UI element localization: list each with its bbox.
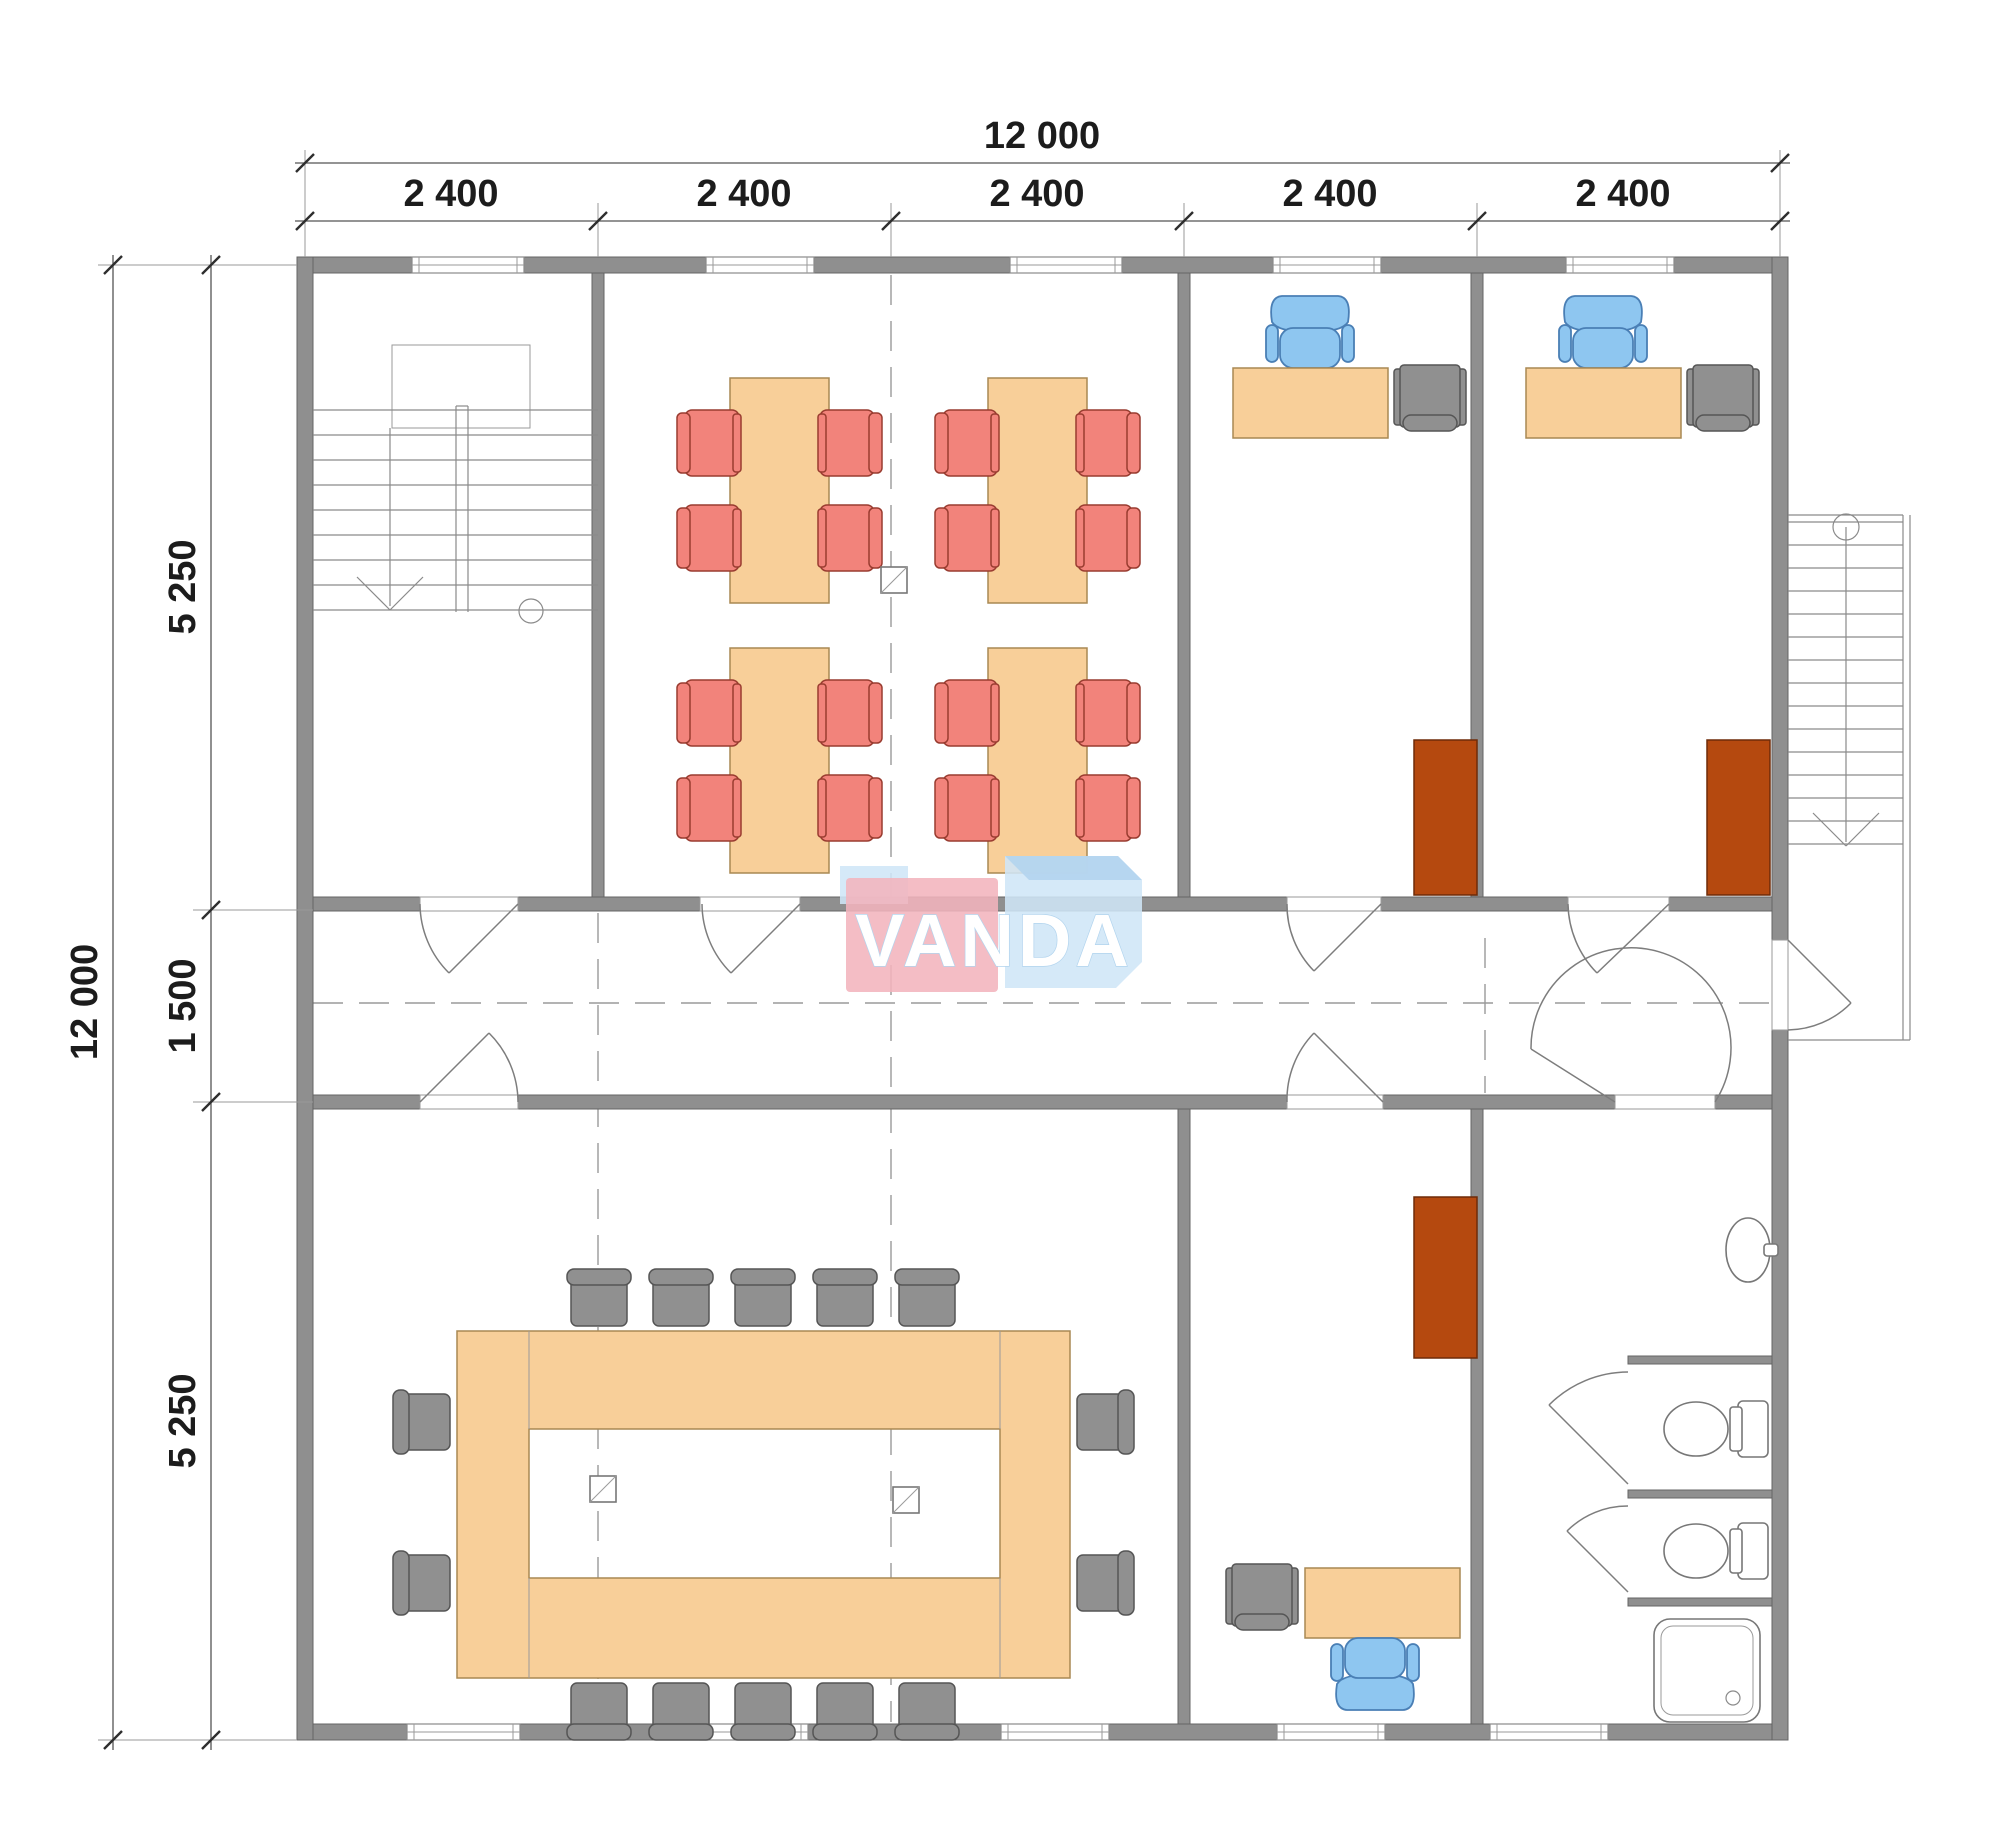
- visitor-chair: [1226, 1564, 1298, 1630]
- dimension-left-total: 12 000: [64, 255, 122, 1750]
- dim-label-bay: 2 400: [403, 173, 498, 215]
- chair: [731, 1683, 795, 1740]
- door-meeting-room: [420, 1033, 518, 1109]
- chair: [935, 680, 999, 746]
- dimension-top-segments: 2 400 2 400 2 400 2 400 2 400: [295, 173, 1790, 230]
- stairwell: [313, 345, 598, 623]
- dimension-top-total: 12 000: [295, 115, 1790, 172]
- door-toilet-stall: [1567, 1506, 1628, 1592]
- chair: [813, 1683, 877, 1740]
- desk: [1305, 1568, 1460, 1638]
- logo-text: VANDA: [855, 899, 1133, 982]
- chair: [1076, 775, 1140, 841]
- window: [1010, 257, 1122, 273]
- chair: [1077, 1551, 1134, 1615]
- chair: [818, 410, 882, 476]
- dining-table: [730, 378, 829, 603]
- chair: [393, 1390, 450, 1454]
- visitor-chair: [1394, 365, 1466, 431]
- window: [1277, 1724, 1385, 1740]
- door-bottom-office: [1287, 1033, 1383, 1109]
- chair: [1076, 680, 1140, 746]
- window: [1273, 257, 1381, 273]
- chair: [1077, 1390, 1134, 1454]
- column-symbol: [881, 567, 907, 593]
- bathroom: [1654, 1218, 1778, 1722]
- chair: [393, 1551, 450, 1615]
- chair: [895, 1269, 959, 1326]
- dim-label-bay: 2 400: [989, 173, 1084, 215]
- door-corridor-exit: [1772, 940, 1851, 1030]
- desk: [1526, 368, 1681, 438]
- wall-bottom-office-divider: [1178, 1109, 1190, 1724]
- chair: [935, 410, 999, 476]
- dim-label-bay: 2 400: [696, 173, 791, 215]
- window: [1001, 1724, 1109, 1740]
- dining-table: [988, 378, 1087, 603]
- door-classroom: [700, 897, 800, 973]
- window: [706, 257, 814, 273]
- door-stairwell: [420, 897, 518, 973]
- cabinet: [1414, 740, 1477, 895]
- wall-stall-partition: [1628, 1490, 1772, 1498]
- toilet: [1664, 1523, 1768, 1579]
- logo-block-blue-top: [1005, 856, 1142, 880]
- stair-rail: [1788, 515, 1910, 1040]
- classroom-tables: [677, 378, 1140, 873]
- office-chair: [1559, 296, 1647, 368]
- window: [1566, 257, 1674, 273]
- door-office-2: [1568, 897, 1669, 973]
- window: [1490, 1724, 1608, 1740]
- chair: [818, 775, 882, 841]
- wall-left: [297, 257, 313, 1740]
- stair-rail: [456, 406, 468, 612]
- chair: [677, 680, 741, 746]
- chair: [567, 1683, 631, 1740]
- wall-corridor-bottom: [313, 1095, 1772, 1109]
- external-staircase: [1788, 514, 1910, 1040]
- vanda-logo: VANDA: [840, 856, 1142, 992]
- office-2: [1526, 296, 1770, 895]
- chair: [677, 505, 741, 571]
- wall-stall-partition: [1628, 1598, 1772, 1606]
- column-symbol: [893, 1487, 919, 1513]
- floor-plan: 12 000 2 400 2 400 2 400 2 400 2 400 12 …: [0, 0, 2000, 1848]
- door-bathroom: [1531, 948, 1731, 1109]
- cabinet: [1707, 740, 1770, 895]
- chair: [935, 775, 999, 841]
- wall-stall-partition: [1628, 1356, 1772, 1364]
- stair-landing: [392, 345, 530, 428]
- chair: [895, 1683, 959, 1740]
- wall-office1-divider: [1178, 273, 1190, 903]
- shower-tray: [1654, 1619, 1760, 1722]
- dim-label-bay: 2 400: [1282, 173, 1377, 215]
- dining-table: [730, 648, 829, 873]
- floor-plan-canvas: 12 000 2 400 2 400 2 400 2 400 2 400 12 …: [0, 0, 2000, 1848]
- chair: [649, 1269, 713, 1326]
- stair-newel-circle: [519, 599, 543, 623]
- office-1: [1233, 296, 1477, 895]
- chair: [567, 1269, 631, 1326]
- sink: [1726, 1218, 1778, 1282]
- chair: [818, 505, 882, 571]
- office-chair: [1331, 1638, 1419, 1710]
- bottom-office: [1226, 1197, 1477, 1710]
- dining-table: [988, 648, 1087, 873]
- chair: [731, 1269, 795, 1326]
- door-toilet-stall: [1549, 1372, 1628, 1484]
- visitor-chair: [1687, 365, 1759, 431]
- chair: [935, 505, 999, 571]
- dim-label-bay: 2 400: [1575, 173, 1670, 215]
- chair: [677, 775, 741, 841]
- dim-label-left-mid: 1 500: [162, 958, 204, 1053]
- window: [407, 1724, 520, 1740]
- chair: [677, 410, 741, 476]
- chair: [649, 1683, 713, 1740]
- office-chair: [1266, 296, 1354, 368]
- dim-label-top-total: 12 000: [984, 115, 1100, 157]
- column-symbol: [590, 1476, 616, 1502]
- cabinet: [1414, 1197, 1477, 1358]
- window: [412, 257, 524, 273]
- dim-label-left-bottom: 5 250: [162, 1373, 204, 1468]
- desk: [1233, 368, 1388, 438]
- toilet: [1664, 1401, 1768, 1457]
- meeting-room: [393, 1269, 1134, 1740]
- wall-stair-divider: [592, 273, 604, 903]
- chair: [818, 680, 882, 746]
- chair: [1076, 505, 1140, 571]
- dim-label-left-total: 12 000: [64, 944, 106, 1060]
- stair-direction-arrow: [357, 428, 423, 610]
- doors: [420, 897, 1851, 1592]
- dimension-left-segments: 5 250 1 500 5 250: [162, 255, 220, 1750]
- door-office-1: [1287, 897, 1381, 971]
- conference-table: [457, 1331, 1070, 1678]
- chair: [1076, 410, 1140, 476]
- chair: [813, 1269, 877, 1326]
- dim-label-left-top: 5 250: [162, 539, 204, 634]
